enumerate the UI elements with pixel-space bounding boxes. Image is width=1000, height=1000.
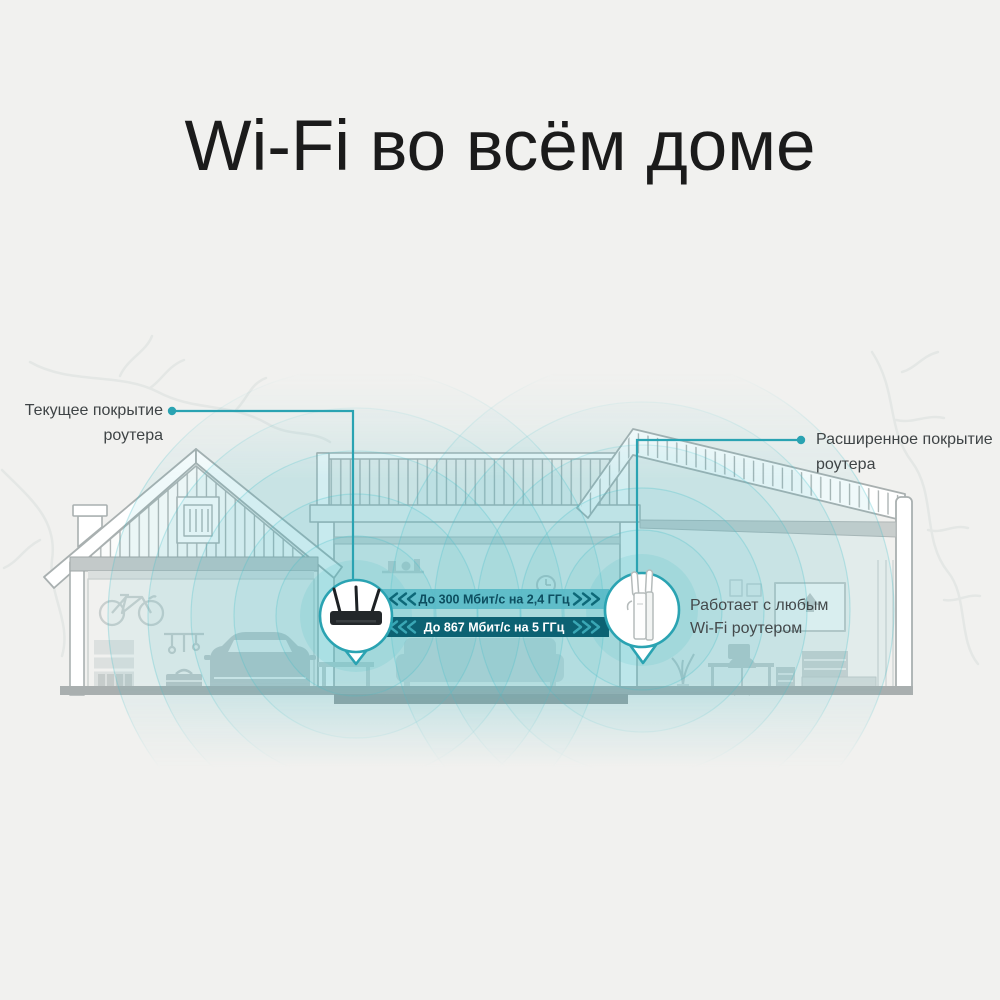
callout-label-line: роутера [816,452,993,477]
callout-label-line: Расширенное покрытие [816,427,993,452]
right-wall [896,497,912,694]
note-line: Wi-Fi роутером [690,617,828,640]
callout-label-line: Текущее покрытие [25,398,163,423]
extender-compatibility-note: Работает с любым Wi-Fi роутером [690,594,828,640]
speed-bar-2g: До 300 Мбит/с на 2,4 ГГц [380,589,609,609]
callout-dot-icon [797,436,805,444]
promo-image: До 300 Мбит/с на 2,4 ГГц До 867 Мбит/с н… [0,0,1000,1000]
page-title: Wi-Fi во всём доме [0,106,1000,187]
callout-dot-icon [168,407,176,415]
speed-bar-5g-label: До 867 Мбит/с на 5 ГГц [424,621,565,635]
note-line: Работает с любым [690,594,828,617]
callout-label-extended-coverage: Расширенное покрытие роутера [816,427,993,477]
callout-label-current-coverage: Текущее покрытие роутера [25,398,163,448]
chimney-cap [73,505,107,516]
callout-label-line: роутера [25,423,163,448]
speed-bar-2g-label: До 300 Мбит/с на 2,4 ГГц [418,593,569,607]
speed-bar-5g: До 867 Мбит/с на 5 ГГц [380,617,609,637]
garage-left-wall [70,562,84,695]
